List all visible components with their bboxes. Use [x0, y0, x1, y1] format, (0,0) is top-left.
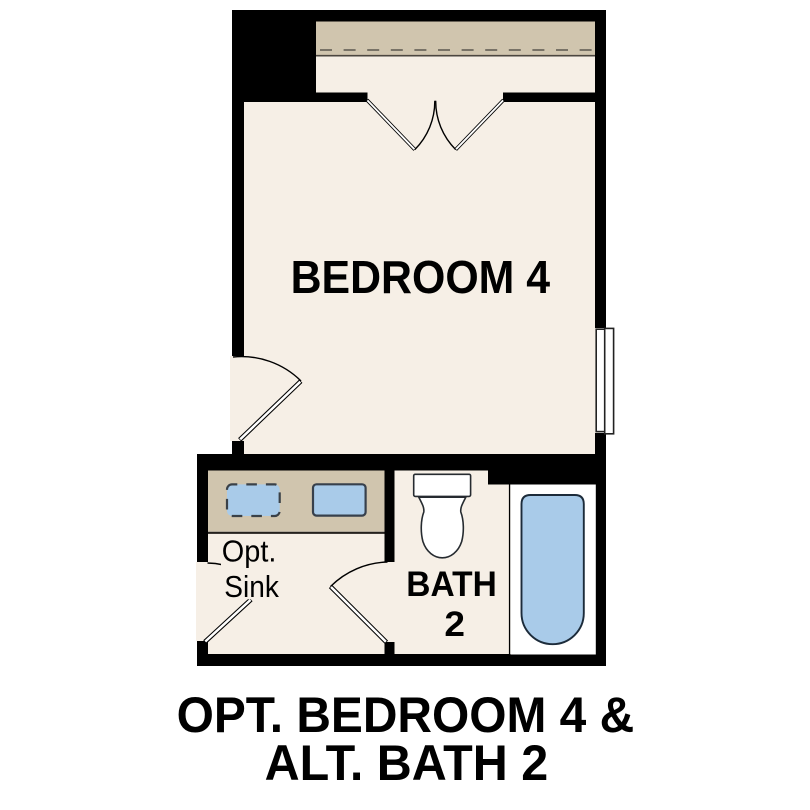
svg-text:BATH: BATH: [406, 565, 497, 604]
svg-text:Sink: Sink: [224, 570, 279, 604]
svg-text:Opt.: Opt.: [222, 535, 277, 569]
svg-text:2: 2: [444, 605, 465, 644]
svg-text:BEDROOM 4: BEDROOM 4: [291, 251, 551, 303]
svg-text:ALT. BATH 2: ALT. BATH 2: [265, 734, 549, 791]
